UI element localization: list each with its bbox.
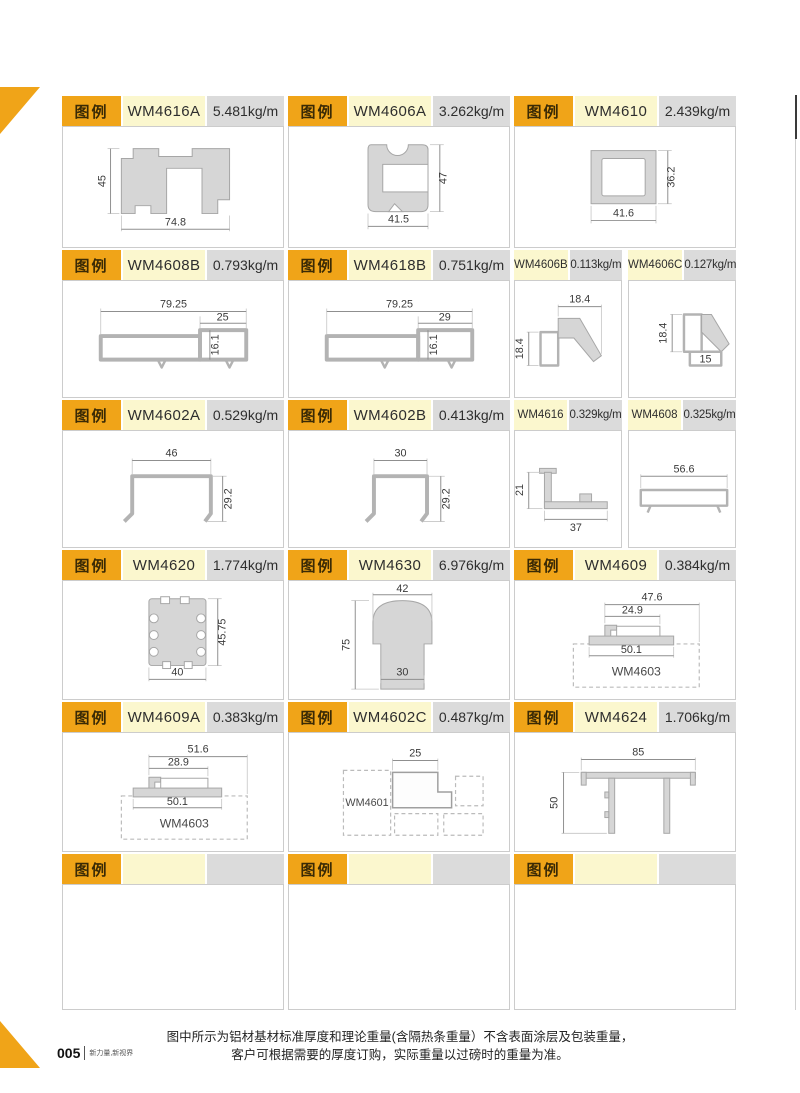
dim-label-height: 16.1: [210, 334, 222, 355]
legend-label: 图例: [288, 702, 347, 732]
cell-header: 图例 WM4609A 0.383kg/m: [62, 702, 284, 732]
unit-weight: 3.262kg/m: [433, 96, 510, 126]
unit-weight-empty: [659, 854, 736, 884]
dimension-lines: [374, 459, 445, 522]
cell-header: 图例 WM4602C 0.487kg/m: [288, 702, 510, 732]
cell-header: 图例 WM4608B 0.793kg/m: [62, 250, 284, 280]
model-code: WM4602A: [123, 400, 205, 430]
dim-label-step: 25: [217, 311, 229, 323]
legend-label: 图例: [514, 550, 573, 580]
model-code: WM4630: [349, 550, 431, 580]
dim-label-left: 18.4: [515, 338, 526, 359]
profile-drawing-wm4624: 85 50: [515, 733, 735, 851]
drawing-area: 45.75 40: [62, 580, 284, 700]
model-code: WM4610: [575, 96, 657, 126]
profile-cell-wm4620: 图例 WM4620 1.774kg/m 45: [62, 550, 284, 700]
profile-shape: [366, 476, 427, 521]
dimension-lines: [641, 474, 727, 488]
profile-drawing-wm4630: 42 75 30: [289, 581, 509, 699]
unit-weight: 0.529kg/m: [207, 400, 284, 430]
dim-label-top: 79.25: [160, 299, 187, 311]
cell-header: 图例 WM4618B 0.751kg/m: [288, 250, 510, 280]
dimension-lines: [527, 472, 607, 521]
dim-label-top: 46: [166, 448, 178, 460]
page-edge-line-dark: [795, 95, 797, 139]
drawing-area: 85 50: [514, 732, 736, 852]
dimension-lines: [393, 759, 438, 771]
unit-weight: 0.751kg/m: [433, 250, 510, 280]
cell-header: 图例 WM4602A 0.529kg/m: [62, 400, 284, 430]
dim-label-bottom: 30: [396, 666, 408, 678]
drawing-area-empty: [514, 884, 736, 1010]
model-code: WM4616: [514, 400, 567, 430]
legend-label: 图例: [514, 702, 573, 732]
profile-drawing-wm4602b: 30 29.2: [289, 431, 509, 547]
dim-label-top: 18.4: [569, 294, 590, 306]
dim-label-top: 79.25: [386, 299, 413, 311]
profile-cell-wm4609a: 图例 WM4609A 0.383kg/m: [62, 702, 284, 852]
drawing-area: 46 29.2: [62, 430, 284, 548]
reference-model-label: WM4603: [612, 664, 661, 678]
unit-weight: 1.706kg/m: [659, 702, 736, 732]
dim-label-width: 41.5: [388, 213, 409, 225]
drawing-area-empty: [62, 884, 284, 1010]
dim-label-height: 16.1: [428, 334, 440, 355]
dim-label-top: 42: [396, 583, 408, 595]
unit-weight: 0.384kg/m: [659, 550, 736, 580]
drawing-area: 30 29.2: [288, 430, 510, 548]
legend-label: 图例: [62, 250, 121, 280]
unit-weight: 0.113kg/m: [570, 250, 622, 280]
drawing-area: 47.6 24.9 50.1 WM4603: [514, 580, 736, 700]
cell-header: 图例 WM4624 1.706kg/m: [514, 702, 736, 732]
profile-drawing-wm4606c: 18.4 15: [629, 281, 735, 397]
drawing-area: 79.25 29 16.1: [288, 280, 510, 398]
page-edge-line: [795, 96, 796, 1010]
profile-drawing-wm4618b: 79.25 29 16.1: [289, 281, 509, 397]
drawing-area: 25 WM4601: [288, 732, 510, 852]
model-code: WM4602B: [349, 400, 431, 430]
profile-cell-wm4606c: WM4606C 0.127kg/m 18.4 15: [628, 250, 736, 398]
model-code: WM4616A: [123, 96, 205, 126]
profile-drawing-wm4606b: 18.4 18.4: [515, 281, 621, 397]
unit-weight: 0.487kg/m: [433, 702, 510, 732]
dim-label-height: 36.2: [666, 167, 678, 188]
profile-cell-wm4602a: 图例 WM4602A 0.529kg/m 46 29.2: [62, 400, 284, 548]
dim-label-top: 30: [394, 448, 406, 460]
page-number: 005: [57, 1046, 85, 1060]
profile-cell-wm4618b: 图例 WM4618B 0.751kg/m 79.25: [288, 250, 510, 398]
unit-weight: 6.976kg/m: [433, 550, 510, 580]
cell-header: WM4608 0.325kg/m: [628, 400, 736, 430]
profile-cell-wm4608: WM4608 0.325kg/m 56.6: [628, 400, 736, 548]
legend-label: 图例: [62, 702, 121, 732]
model-code: WM4608B: [123, 250, 205, 280]
cell-header: 图例 WM4620 1.774kg/m: [62, 550, 284, 580]
cell-header: WM4606C 0.127kg/m: [628, 250, 736, 280]
unit-weight: 0.793kg/m: [207, 250, 284, 280]
dim-label-height: 47: [438, 172, 450, 184]
profile-table: 图例 WM4616A 5.481kg/m 45 74.8: [62, 96, 738, 1010]
legend-label: 图例: [288, 400, 347, 430]
model-code-empty: [575, 854, 657, 884]
drawing-area: 45 74.8: [62, 126, 284, 248]
model-code-empty: [349, 854, 431, 884]
profile-cell-wm4608b: 图例 WM4608B 0.793kg/m 79.25: [62, 250, 284, 398]
legend-label: 图例: [288, 550, 347, 580]
cell-header: 图例 WM4602B 0.413kg/m: [288, 400, 510, 430]
profile-drawing-wm4609: 47.6 24.9 50.1 WM4603: [515, 581, 735, 699]
corner-triangle-top: [0, 87, 40, 134]
drawing-area-empty: [288, 884, 510, 1010]
cell-header: 图例 WM4610 2.439kg/m: [514, 96, 736, 126]
unit-weight-empty: [433, 854, 510, 884]
profile-cell-empty-2: 图例: [288, 854, 510, 1010]
page-tagline: 新力量,新视界: [89, 1048, 133, 1058]
cell-header: WM4616 0.329kg/m: [514, 400, 622, 430]
profile-shape: [702, 314, 729, 351]
dim-label-1: 51.6: [188, 744, 209, 756]
dim-label-left: 21: [515, 484, 526, 496]
model-code: WM4624: [575, 702, 657, 732]
profile-shape: [101, 336, 200, 360]
dim-label-left: 18.4: [657, 323, 669, 344]
dim-label-step: 29: [439, 311, 451, 323]
profile-cell-wm4624: 图例 WM4624 1.706kg/m 85: [514, 702, 736, 852]
profile-drawing-wm4602a: 46 29.2: [63, 431, 283, 547]
footer-note-line1: 图中所示为铝材基材标准厚度和理论重量(含隔热条重量）不含表面涂层及包装重量，: [0, 1028, 800, 1046]
cell-header: 图例 WM4606A 3.262kg/m: [288, 96, 510, 126]
dim-label-height: 29.2: [222, 488, 234, 509]
cell-header: 图例: [62, 854, 284, 884]
legend-label: 图例: [514, 854, 573, 884]
profile-shape: [121, 149, 229, 214]
dim-label-top: 25: [409, 748, 421, 760]
profile-drawing-wm4609a: 51.6 28.9 50.1 WM4603: [63, 733, 283, 851]
dimension-lines: [670, 314, 682, 351]
dim-label-2: 24.9: [622, 604, 643, 616]
profile-cell-wm4630: 图例 WM4630 6.976kg/m 42 75: [288, 550, 510, 700]
unit-weight: 0.325kg/m: [683, 400, 736, 430]
legend-label: 图例: [514, 96, 573, 126]
dim-label-left: 50: [549, 797, 561, 809]
profile-shape: [124, 476, 211, 521]
profile-drawing-wm4616: 21 37: [515, 431, 621, 547]
drawing-area: 36.2 41.6: [514, 126, 736, 248]
dim-label-height: 45.75: [217, 619, 229, 646]
unit-weight-empty: [207, 854, 284, 884]
legend-label: 图例: [288, 250, 347, 280]
drawing-area: 18.4 15: [628, 280, 736, 398]
legend-label: 图例: [62, 96, 121, 126]
cell-header: 图例: [514, 854, 736, 884]
unit-weight: 0.127kg/m: [684, 250, 736, 280]
unit-weight: 0.413kg/m: [433, 400, 510, 430]
profile-drawing-wm4602c: 25 WM4601: [289, 733, 509, 851]
cell-header: 图例 WM4630 6.976kg/m: [288, 550, 510, 580]
dim-label-left: 75: [340, 639, 352, 651]
profile-drawing-wm4608b: 79.25 25 16.1: [63, 281, 283, 397]
profile-cell-wm4616: WM4616 0.329kg/m 21 37: [514, 400, 622, 548]
dim-label-2: 28.9: [168, 756, 189, 768]
unit-weight: 0.329kg/m: [569, 400, 622, 430]
model-code: WM4609A: [123, 702, 205, 732]
model-code-empty: [123, 854, 205, 884]
cell-header: 图例: [288, 854, 510, 884]
profile-cell-empty-1: 图例: [62, 854, 284, 1010]
model-code: WM4620: [123, 550, 205, 580]
unit-weight: 2.439kg/m: [659, 96, 736, 126]
drawing-area: 51.6 28.9 50.1 WM4603: [62, 732, 284, 852]
model-code: WM4606A: [349, 96, 431, 126]
profile-drawing-wm4606a: 47 41.5: [289, 127, 509, 247]
profile-cell-wm4602c: 图例 WM4602C 0.487kg/m 25 WM4601: [288, 702, 510, 852]
profile-shape: [581, 772, 695, 778]
profile-drawing-wm4610: 36.2 41.6: [515, 127, 735, 247]
legend-label: 图例: [288, 854, 347, 884]
dim-label-3: 50.1: [621, 644, 642, 656]
drawing-area: 42 75 30: [288, 580, 510, 700]
drawing-area: 56.6: [628, 430, 736, 548]
legend-label: 图例: [62, 854, 121, 884]
unit-weight: 0.383kg/m: [207, 702, 284, 732]
dim-label-top: 85: [632, 747, 644, 759]
model-code: WM4608: [628, 400, 681, 430]
legend-label: 图例: [288, 96, 347, 126]
drawing-area: 47 41.5: [288, 126, 510, 248]
cell-header: 图例 WM4609 0.384kg/m: [514, 550, 736, 580]
cell-header: WM4606B 0.113kg/m: [514, 250, 622, 280]
dimension-lines: [562, 758, 696, 834]
dim-label-3: 50.1: [167, 796, 188, 808]
dim-label-bottom: 37: [570, 522, 582, 534]
profile-cell-wm4610: 图例 WM4610 2.439kg/m 36.2 41.6: [514, 96, 736, 248]
profile-cell-wm4606a: 图例 WM4606A 3.262kg/m 47 41.5: [288, 96, 510, 248]
dim-label-width: 41.6: [613, 208, 634, 220]
profile-drawing-wm4616a: 45 74.8: [63, 127, 283, 247]
model-code: WM4606B: [514, 250, 568, 280]
dim-label-bottom: 40: [171, 666, 183, 678]
profile-shape: [558, 318, 601, 361]
drawing-area: 79.25 25 16.1: [62, 280, 284, 398]
drawing-area: 18.4 18.4: [514, 280, 622, 398]
profile-cell-wm4602b: 图例 WM4602B 0.413kg/m 30 29.2: [288, 400, 510, 548]
model-code: WM4606C: [628, 250, 682, 280]
cell-header: 图例 WM4616A 5.481kg/m: [62, 96, 284, 126]
model-code: WM4618B: [349, 250, 431, 280]
dim-label-1: 47.6: [642, 592, 663, 604]
catalog-page: 图例 WM4616A 5.481kg/m 45 74.8: [0, 0, 800, 1093]
legend-label: 图例: [62, 400, 121, 430]
unit-weight: 5.481kg/m: [207, 96, 284, 126]
drawing-area: 21 37: [514, 430, 622, 548]
unit-weight: 1.774kg/m: [207, 550, 284, 580]
profile-shape: [327, 336, 418, 360]
reference-model-label: WM4601: [345, 797, 388, 809]
reference-model-label: WM4603: [160, 816, 209, 830]
profile-cell-wm4606b: WM4606B 0.113kg/m 18.4 18.4: [514, 250, 622, 398]
dim-label-bottom: 15: [700, 354, 712, 366]
profile-shape: [641, 490, 727, 506]
profile-drawing-wm4620: 45.75 40: [63, 581, 283, 699]
profile-cell-empty-3: 图例: [514, 854, 736, 1010]
page-number-block: 005 新力量,新视界: [57, 1046, 133, 1060]
profile-shape: [393, 772, 452, 807]
legend-label: 图例: [62, 550, 121, 580]
dim-label-top: 56.6: [673, 463, 694, 475]
model-code: WM4602C: [349, 702, 431, 732]
profile-cell-wm4609: 图例 WM4609 0.384kg/m: [514, 550, 736, 700]
dim-label-height: 29.2: [441, 488, 453, 509]
dim-label-height: 45: [97, 175, 109, 187]
model-code: WM4609: [575, 550, 657, 580]
profile-drawing-wm4608: 56.6: [629, 431, 735, 547]
profile-cell-wm4616a: 图例 WM4616A 5.481kg/m 45 74.8: [62, 96, 284, 248]
dim-label-width: 74.8: [165, 216, 186, 228]
